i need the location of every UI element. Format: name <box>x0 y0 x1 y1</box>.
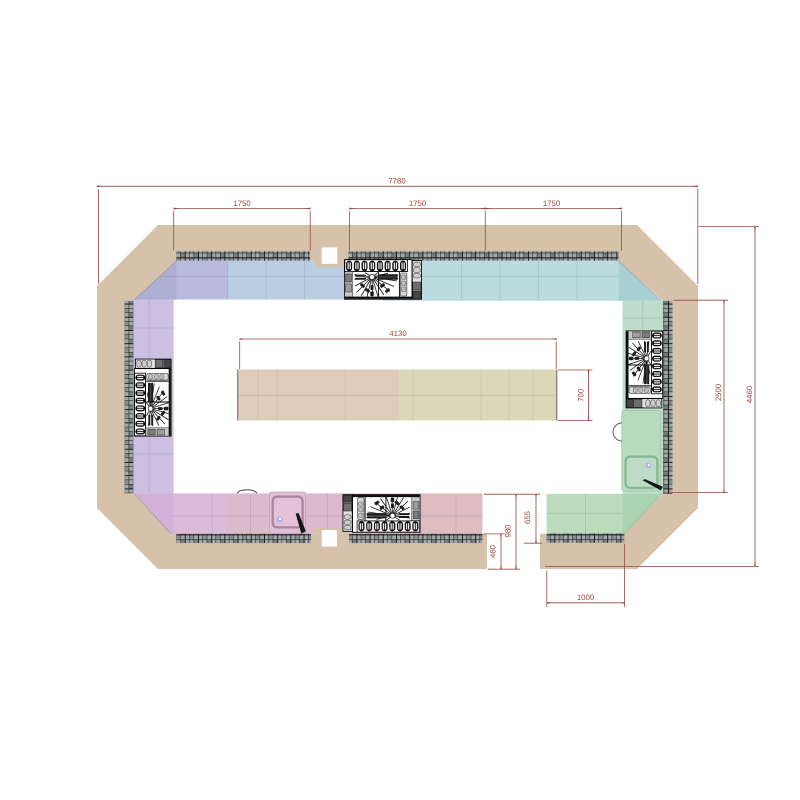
svg-text:7780: 7780 <box>388 177 406 186</box>
svg-text:1750: 1750 <box>543 199 561 208</box>
svg-text:1000: 1000 <box>577 593 595 602</box>
svg-text:655: 655 <box>523 510 532 524</box>
svg-text:4460: 4460 <box>745 385 754 403</box>
svg-text:460: 460 <box>489 544 498 558</box>
svg-text:1750: 1750 <box>409 199 427 208</box>
svg-text:700: 700 <box>577 388 586 402</box>
svg-text:980: 980 <box>504 524 513 538</box>
svg-text:4130: 4130 <box>389 329 407 338</box>
svg-text:1750: 1750 <box>233 199 251 208</box>
svg-text:2500: 2500 <box>714 383 723 401</box>
